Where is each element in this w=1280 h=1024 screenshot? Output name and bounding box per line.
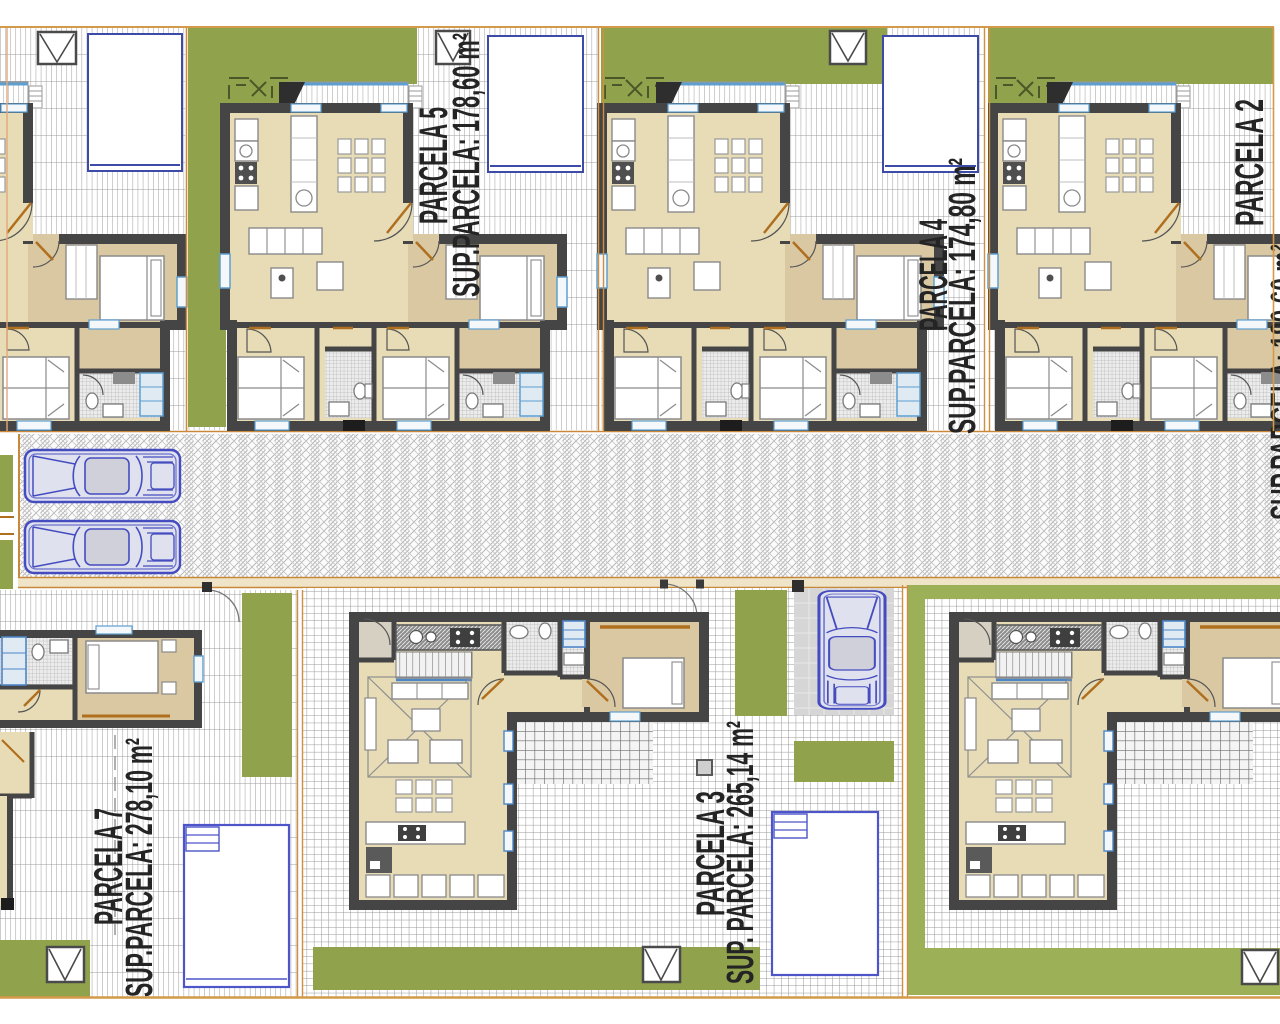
svg-text:SUP.PARCELA: 278,10 m²: SUP.PARCELA: 278,10 m² <box>119 738 161 997</box>
svg-text:SUP. PARCELA: 265,14 m²: SUP. PARCELA: 265,14 m² <box>720 721 762 984</box>
svg-text:SUP.PARCELA: 180,60 m²: SUP.PARCELA: 180,60 m² <box>1264 244 1280 520</box>
svg-text:SUP.PARCELA: 174,80 m²: SUP.PARCELA: 174,80 m² <box>942 158 984 434</box>
svg-text:SUP.PARCELA: 178,60 m²: SUP.PARCELA: 178,60 m² <box>446 33 488 297</box>
svg-text:PARCELA 2: PARCELA 2 <box>1228 99 1272 226</box>
